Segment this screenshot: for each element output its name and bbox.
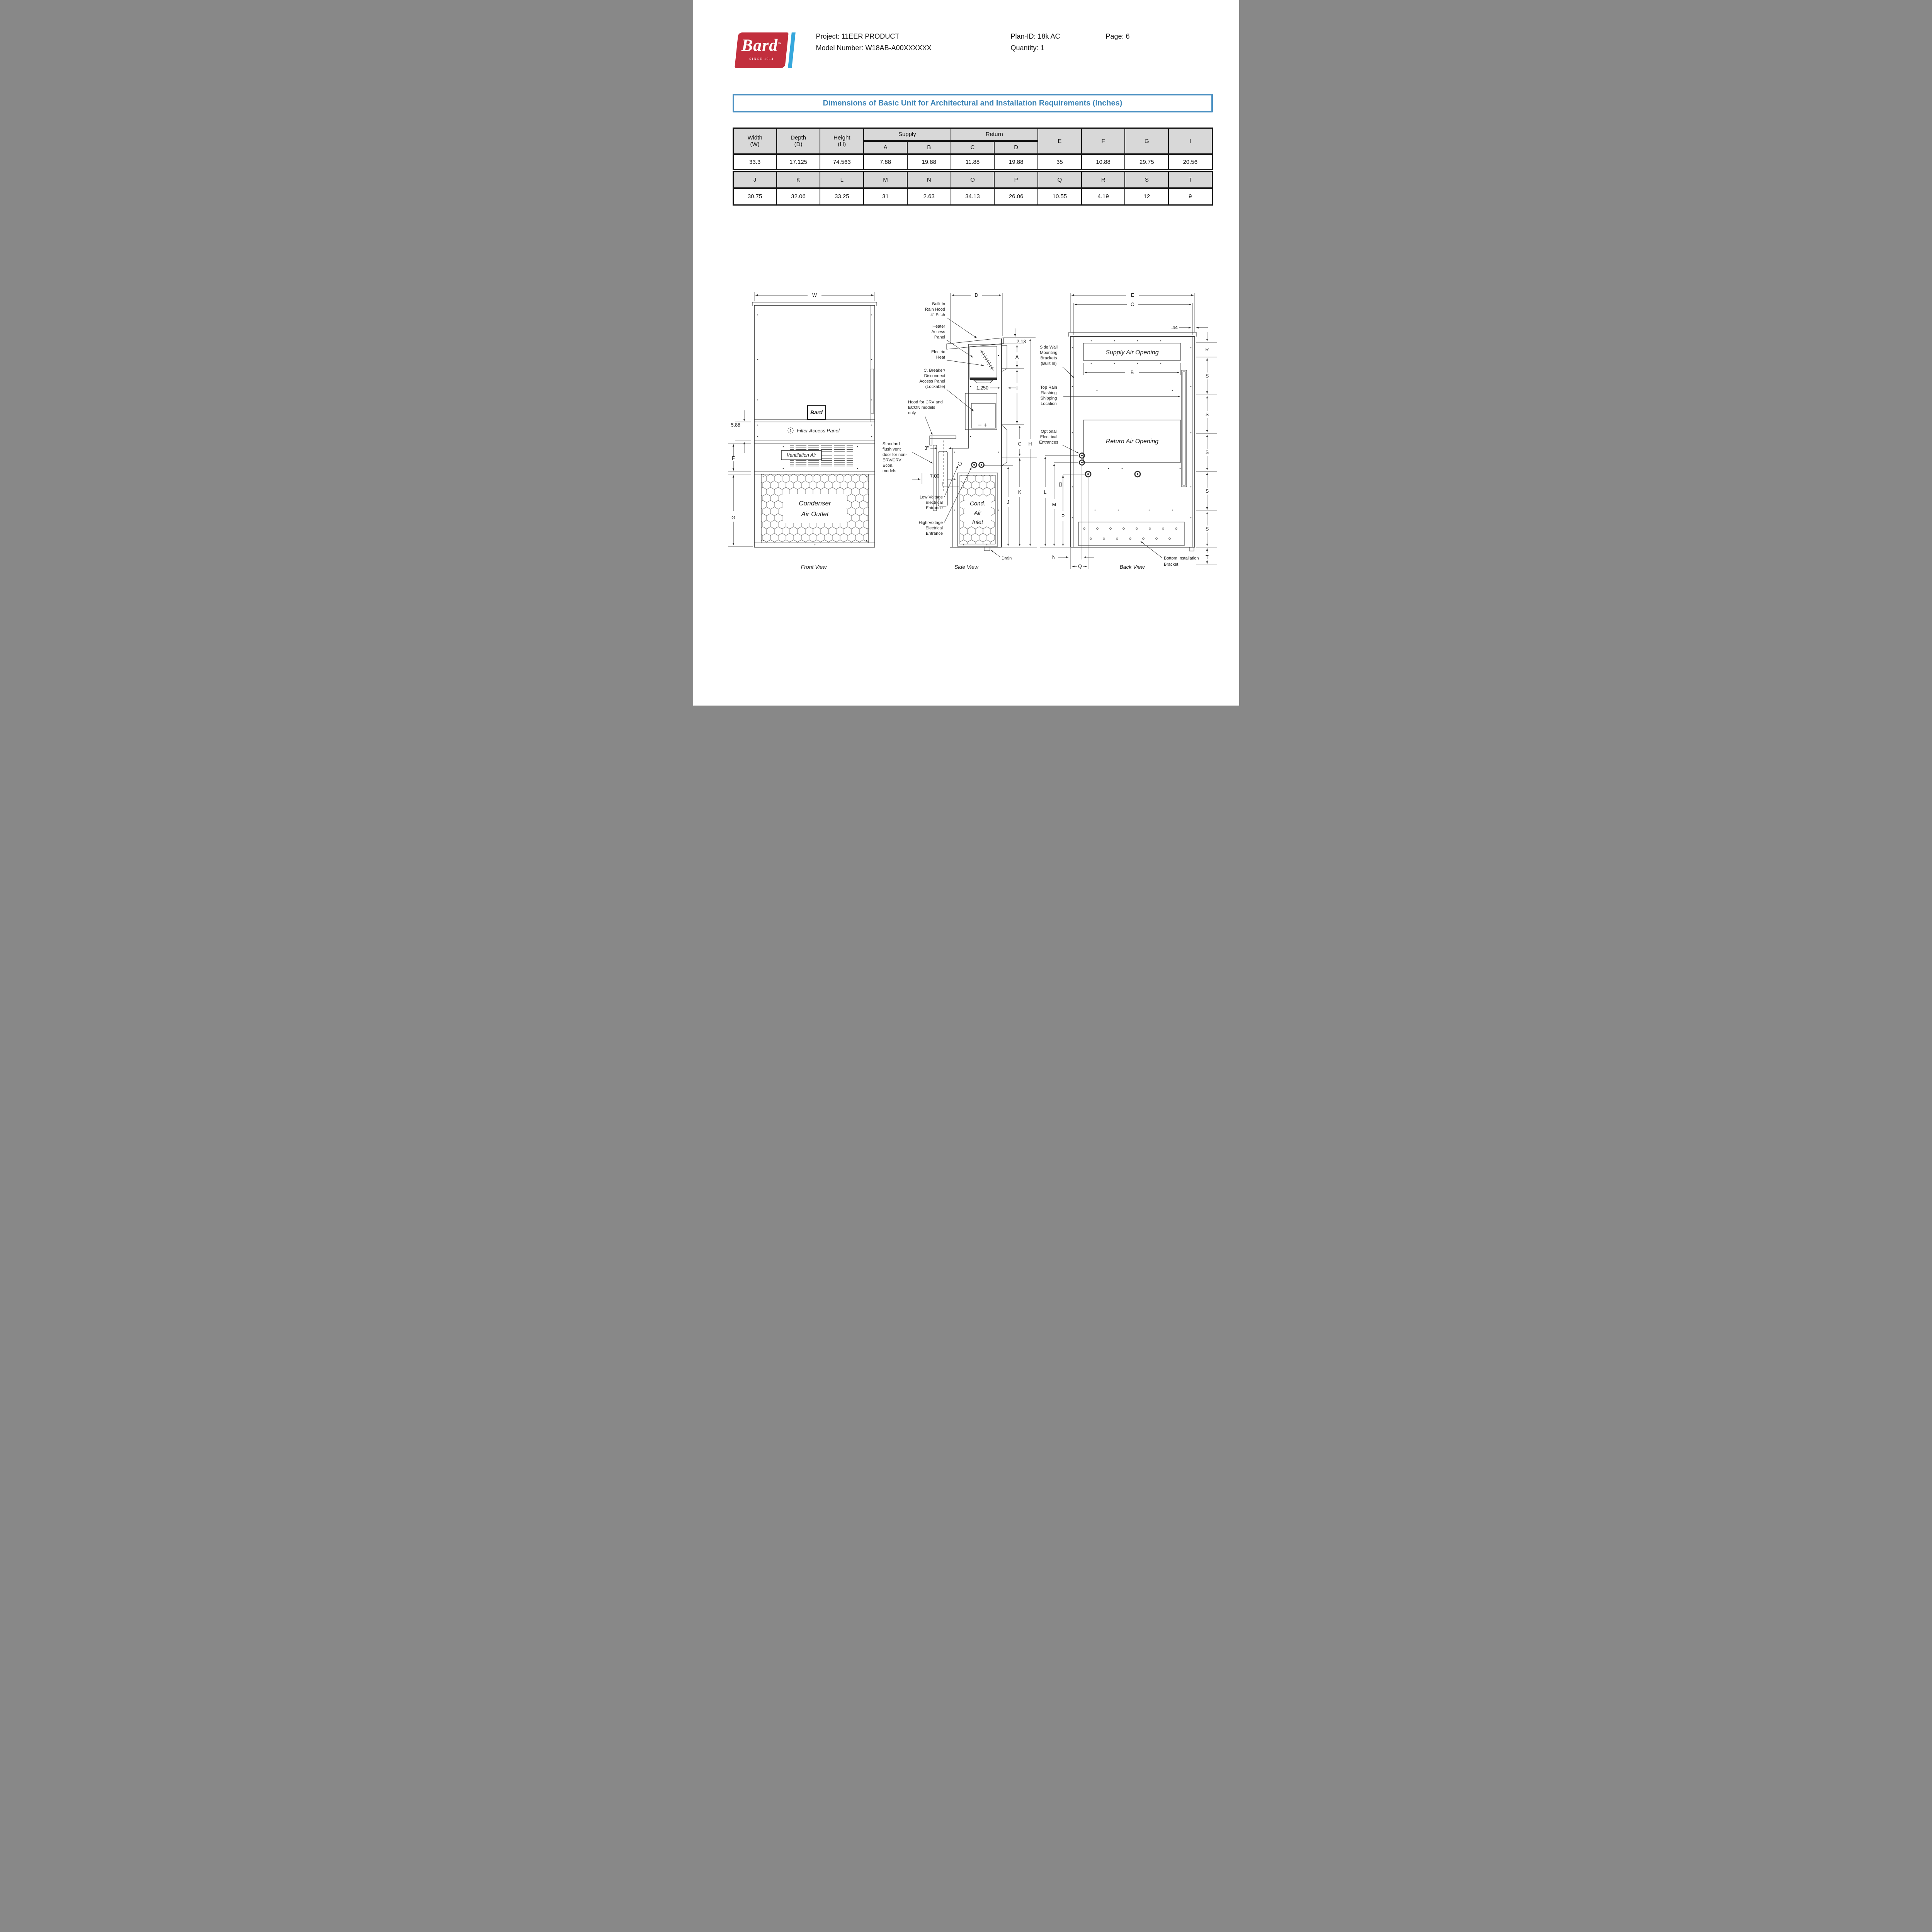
front-view-caption: Front View [801,564,827,570]
flush-vent-label-5: Econ. [883,463,893,468]
breaker-label-4: (Lockable) [925,384,945,389]
dim-label-l: L [1044,490,1046,495]
group-header-supply: Supply [864,128,951,141]
drain-stub [984,547,990,551]
low-voltage-label-2: Electrical [925,500,943,505]
value-w: 33.3 [733,154,777,169]
bracket-holes [1083,528,1177,539]
value-c: 11.88 [951,154,995,169]
dim-label-w: W [812,293,817,298]
dim-label-44: .44 [1171,325,1177,330]
value-p: 26.06 [994,188,1038,205]
value-j: 30.75 [733,188,777,205]
col-header-j: J [733,172,777,188]
filter-access-panel-label: Filter Access Panel [797,428,840,434]
col-header-i: I [1168,128,1212,155]
condenser-label-line1: Condenser [799,500,832,507]
high-voltage-entrance-grommets [971,463,984,468]
dim-label-q: Q [1078,564,1082,569]
rain-hood-label-1: Built In [932,302,945,306]
top-rain-flashing-strip [1182,370,1187,487]
dim-label-a: A [1015,354,1019,360]
high-voltage-label-1: High Voltage [918,520,942,525]
dim-label-p: P [1061,514,1064,519]
high-voltage-label-2: Electrical [925,526,943,531]
bottom-bracket-label-1: Bottom Installation [1164,556,1199,561]
optional-elec-label-1: Optional [1041,429,1056,434]
side-wall-bracket-lower [1002,425,1007,466]
col-header-width: Width(W) [733,128,777,155]
value-d: 17.125 [777,154,820,169]
electric-heat-element [979,349,995,371]
flush-vent-label-1: Standard [883,442,900,446]
col-header-height: Height(H) [820,128,864,155]
value-dd: 19.88 [994,154,1038,169]
trademark-symbol: ™ [778,42,782,46]
cond-air-inlet-line2: Air [973,510,981,516]
side-wall-label-1: Side Wall [1039,345,1057,350]
value-h: 74.563 [820,154,864,169]
value-f: 10.88 [1082,154,1125,169]
value-b: 19.88 [907,154,951,169]
rain-hood-label-2: Rain Hood [925,307,945,312]
low-voltage-label-1: Low Voltage [920,495,943,500]
flush-vent-label-6: models [883,469,896,473]
heater-label-3: Panel [934,335,945,340]
breaker-label-1: C. Breaker/ [923,368,946,373]
col-header-e: E [1038,128,1082,155]
low-voltage-label-3: Entrance [925,506,942,510]
dim-label-d: D [975,293,978,298]
crv-hood-label-3: only [908,411,916,415]
front-logo-text: Bard [810,409,823,415]
dim-label-o: O [1131,302,1134,307]
bottom-installation-bracket [1078,522,1184,546]
section-title: Dimensions of Basic Unit for Architectur… [823,99,1122,108]
top-rain-label-4: Location [1041,401,1057,406]
col-header-depth: Depth(D) [777,128,820,155]
col-header-p: P [994,172,1038,188]
value-n: 2.63 [907,188,951,205]
dim-label-k: K [1018,490,1021,495]
optional-elec-label-3: Entrances [1039,440,1058,445]
dim-label-3in: 3" [924,446,929,451]
top-rain-label-1: Top Rain [1040,385,1057,390]
dim-label-t: T [1206,554,1209,560]
col-header-g: G [1125,128,1168,155]
dim-label-g: G [731,515,735,520]
col-header-n: N [907,172,951,188]
heater-label-1: Heater [932,324,945,329]
col-header-o: O [951,172,995,188]
sub-header-d: D [994,141,1038,154]
dim-label-s2: S [1205,412,1208,417]
dimensions-table-1: Width(W) Depth(D) Height(H) Supply Retur… [733,128,1213,170]
group-header-return: Return [951,128,1038,141]
side-wall-label-3: Brackets [1040,356,1057,361]
dim-label-s5: S [1205,526,1208,532]
back-right-dim-column: R S S S S S T [1196,332,1217,565]
dim-label-f: F [732,456,735,461]
crv-hood-label-1: Hood for CRV and [908,400,943,405]
bard-logo-stripe [788,32,796,68]
supply-air-opening-label: Supply Air Opening [1105,349,1158,356]
condenser-label-line2: Air Outlet [801,510,829,518]
keyhole-slot [1060,482,1061,487]
heater-label-2: Access [931,330,945,334]
bard-logo-word: Bard™ [736,32,787,57]
back-view-caption: Back View [1119,564,1145,570]
flush-vent-label-4: ERV/CRV [883,458,901,463]
dim-label-j: J [1007,500,1009,505]
dimensions-table-2: J K L M N O P Q R S T 30.75 32.06 33.25 … [733,171,1213,204]
dim-label-s3: S [1205,450,1208,455]
col-header-m: M [864,172,907,188]
value-l: 33.25 [820,188,864,205]
col-header-t: T [1168,172,1212,188]
col-header-k: K [777,172,820,188]
ventilation-air-label: Ventilation Air [786,452,816,458]
col-header-s: S [1125,172,1168,188]
value-i: 20.56 [1168,154,1212,169]
quantity-line: Quantity: 1 [1011,44,1044,52]
optional-electrical-entrances [1079,453,1140,477]
note-1-number: 1 [789,429,792,433]
value-o: 34.13 [951,188,995,205]
value-m: 31 [864,188,907,205]
dim-label-c: C [1018,441,1021,447]
top-rain-label-2: Flashing [1041,391,1057,395]
dim-label-i: I [1016,386,1017,391]
dim-label-1-250: 1.250 [976,385,988,391]
sub-header-a: A [864,141,907,154]
dim-label-s4: S [1205,488,1208,494]
value-t: 9 [1168,188,1212,205]
page-number: Page: 6 [1106,32,1130,41]
value-a: 7.88 [864,154,907,169]
col-header-f: F [1082,128,1125,155]
sub-header-c: C [951,141,995,154]
cond-air-inlet-line3: Inlet [972,519,983,526]
drain-label: Drain [1002,556,1012,561]
bard-logo: Bard™ SINCE 1914 [735,32,789,68]
table-row: 30.75 32.06 33.25 31 2.63 34.13 26.06 10… [733,188,1212,205]
low-voltage-entrance-hole [958,462,961,466]
value-q: 10.55 [1038,188,1082,205]
dim-label-5-88: 5.88 [731,422,740,428]
flush-vent-label-2: flush vent [883,447,901,452]
optional-elec-label-2: Electrical [1040,435,1057,439]
electric-heat-label-1: Electric [931,350,945,354]
side-rain-hood [947,338,1003,349]
sub-header-b: B [907,141,951,154]
crv-hood-label-2: ECON models [908,405,935,410]
value-s: 12 [1125,188,1168,205]
side-wall-bracket-upper [1002,345,1007,372]
back-foot-tab [1189,547,1194,551]
return-air-opening-label: Return Air Opening [1105,438,1158,445]
project-line: Project: 11EER PRODUCT [816,32,900,41]
vent-pipe-elbow [943,482,959,486]
dim-label-m: M [1052,502,1056,507]
dim-label-e: E [1131,293,1134,298]
flush-vent-label-3: door for non- [883,452,907,457]
value-e: 35 [1038,154,1082,169]
side-wall-label-2: Mounting [1040,350,1057,355]
breaker-label-2: Disconnect [924,374,945,378]
electric-heat-label-2: Heat [936,355,945,360]
technical-drawings: Bard 1 Filter Access Panel Ventilation A… [693,270,1239,607]
dim-label-h: H [1028,441,1032,447]
back-view-drawing: Supply Air Opening Return Air Opening E … [1039,293,1217,570]
top-rain-label-3: Shipping [1040,396,1057,401]
side-view-caption: Side View [954,564,978,570]
section-title-bar: Dimensions of Basic Unit for Architectur… [733,94,1213,112]
dim-label-s1: S [1205,373,1208,379]
front-view-drawing: Bard 1 Filter Access Panel Ventilation A… [728,292,877,570]
col-header-r: R [1082,172,1125,188]
side-wall-label-4: (Built In) [1041,361,1056,366]
high-voltage-label-3: Entrance [925,531,942,536]
dim-label-b: B [1130,370,1133,375]
side-view-drawing: Cond. Air Inlet D 2.13 [883,293,1037,570]
col-header-l: L [820,172,864,188]
back-screw-dots [1071,340,1191,519]
col-header-q: Q [1038,172,1082,188]
dim-label-r: R [1205,347,1209,352]
value-r: 4.19 [1082,188,1125,205]
bard-logo-tagline: SINCE 1914 [736,57,787,61]
breaker-label-3: Access Panel [919,379,945,384]
model-line: Model Number: W18AB-A00XXXXXX [816,44,932,52]
back-top-cap [1068,333,1197,337]
dim-label-2-13: 2.13 [1016,339,1026,344]
rain-hood-label-3: 4° Pitch [930,313,945,317]
cond-air-inlet-line1: Cond. [969,500,985,507]
dim-label-n: N [1052,554,1055,560]
spec-sheet-page: Bard™ SINCE 1914 Project: 11EER PRODUCT … [693,0,1239,706]
front-door-hinge [871,369,874,413]
value-k: 32.06 [777,188,820,205]
value-g: 29.75 [1125,154,1168,169]
dim-label-7-00: 7.00 [930,473,939,479]
table-row: 33.3 17.125 74.563 7.88 19.88 11.88 19.8… [733,154,1212,169]
plan-id-line: Plan-ID: 18k AC [1011,32,1060,41]
bottom-bracket-label-2: Bracket [1164,562,1178,567]
crv-hood [930,436,956,439]
breaker-access-panel [965,393,997,430]
